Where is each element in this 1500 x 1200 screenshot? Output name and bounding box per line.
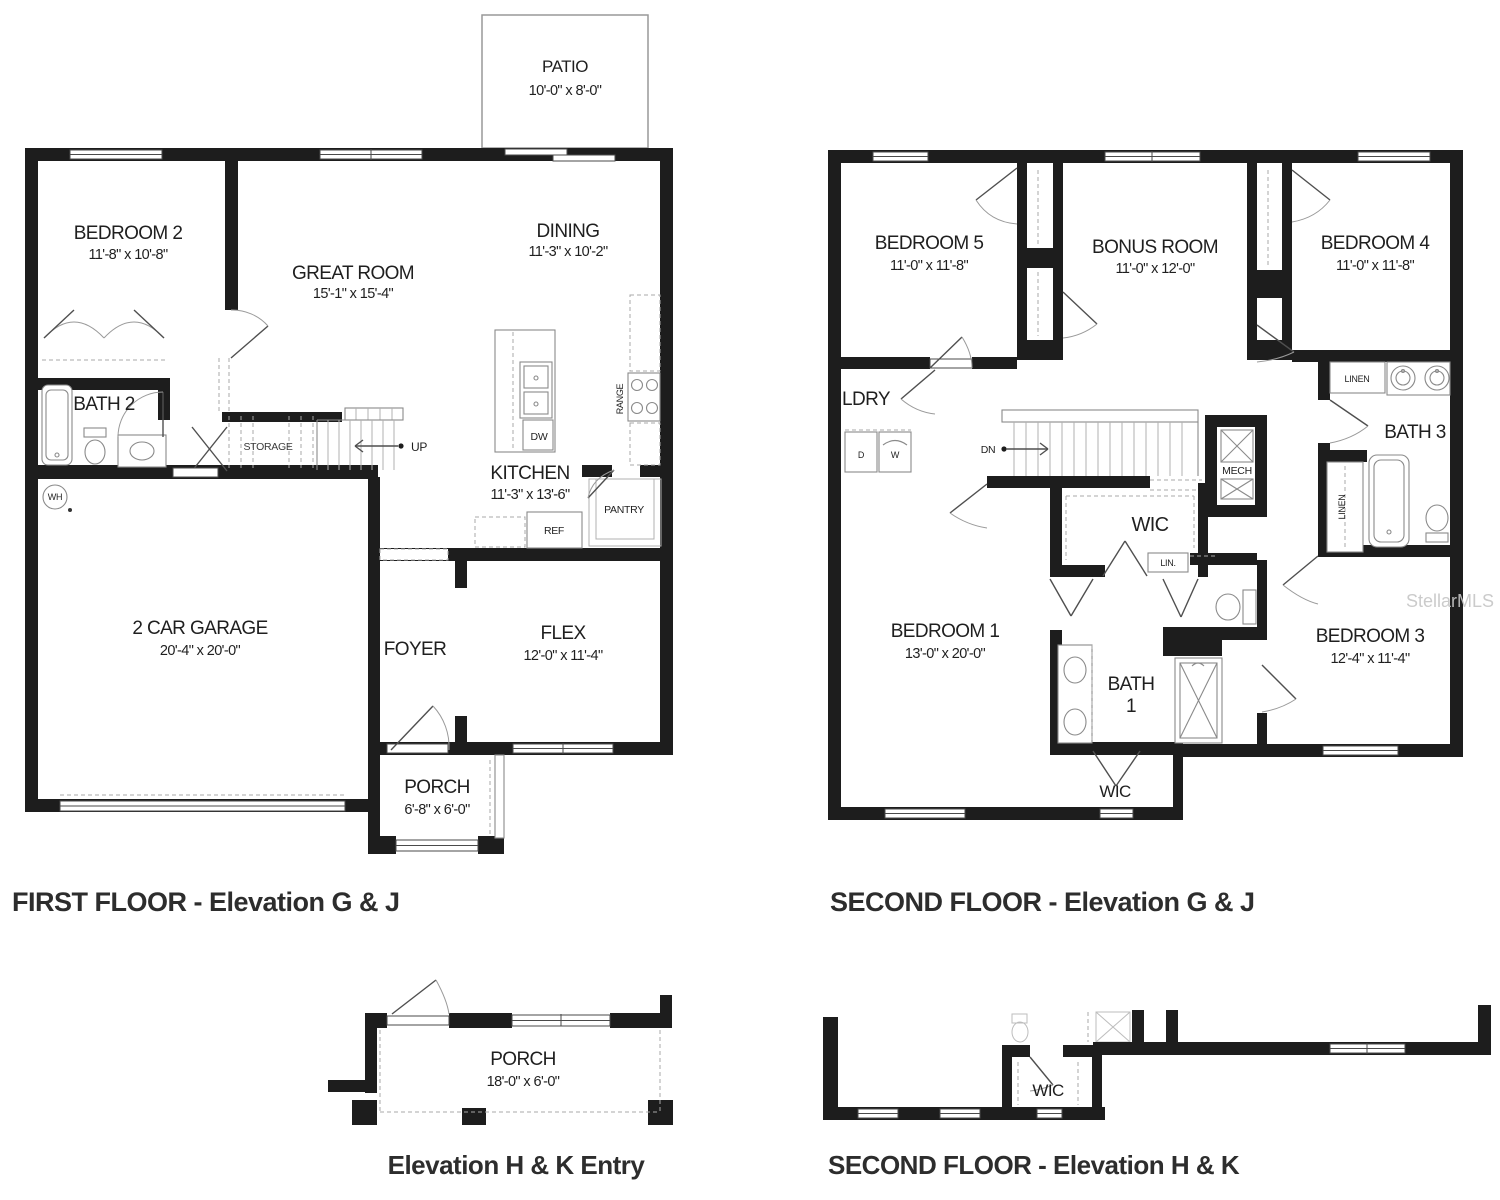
bath1-label-line1: BATH	[1108, 674, 1155, 695]
stellar-mls-watermark: StellarMLS	[1406, 591, 1494, 611]
patio-label: PATIO	[542, 57, 588, 76]
wic-hk-label: WIC	[1032, 1081, 1064, 1100]
bedroom2-dims: 11'-8" x 10'-8"	[88, 247, 168, 263]
dining-label: DINING	[537, 221, 600, 242]
bedroom4-label: BEDROOM 4	[1321, 233, 1431, 254]
floor-plan-sheet: PATIO 10'-0" x 8'-0"	[0, 0, 1500, 1200]
bedroom2-label: BEDROOM 2	[74, 223, 183, 244]
laundry-fixtures: D W	[845, 430, 911, 472]
lin-label: LIN.	[1160, 558, 1175, 568]
entry-porch-dims: 18'-0" x 6'-0"	[487, 1074, 560, 1090]
wic-label: WIC	[1131, 514, 1168, 536]
wh-label: WH	[48, 492, 62, 502]
porch-dims: 6'-8" x 6'-0"	[404, 802, 470, 818]
kitchen-dims: 11'-3" x 13'-6"	[490, 487, 570, 503]
kitchen-fixtures: DW RANGE REF PANTRY	[475, 295, 661, 548]
second-floor-title: SECOND FLOOR - Elevation G & J	[830, 887, 1255, 917]
dn-label: DN	[981, 444, 996, 456]
entry-elevation-plan: PORCH 18'-0" x 6'-0" Elevation H & K Ent…	[328, 980, 673, 1180]
up-label: UP	[411, 440, 427, 454]
ref-label: REF	[544, 525, 564, 537]
dw-label: DW	[531, 431, 548, 443]
ghost-fixtures	[1012, 1012, 1130, 1042]
dryer-label: D	[858, 450, 865, 460]
second-floor-plan: D W DN MECH	[828, 150, 1463, 917]
bedroom5-label: BEDROOM 5	[875, 233, 984, 254]
second-floor-hk-title: SECOND FLOOR - Elevation H & K	[828, 1150, 1240, 1180]
mech-label: MECH	[1222, 465, 1252, 477]
water-heater: WH	[43, 485, 72, 512]
foyer-label: FOYER	[384, 639, 446, 660]
great-room-dims: 15'-1" x 15'-4"	[313, 286, 394, 302]
ldry-label: LDRY	[842, 389, 891, 410]
bedroom3-dims: 12'-4" x 11'-4"	[1330, 651, 1410, 667]
linen-label: LINEN	[1344, 374, 1369, 384]
bedroom2-door	[231, 310, 268, 358]
bedroom5-dims: 11'-0" x 11'-8"	[890, 258, 968, 274]
front-door	[387, 706, 449, 753]
bath1-fixtures	[1058, 590, 1256, 743]
storage-label: STORAGE	[243, 441, 292, 453]
second-floor-hk-plan: WIC SECOND FLOOR - Elevation H & K	[823, 1005, 1491, 1180]
garage-dims: 20'-4" x 20'-0"	[160, 643, 241, 659]
bedroom3-label: BEDROOM 3	[1316, 626, 1425, 647]
bedroom1-dims: 13'-0" x 20'-0"	[905, 646, 986, 662]
entry-porch-label: PORCH	[490, 1049, 556, 1070]
stairs-down: DN	[981, 410, 1198, 476]
patio-dims: 10'-0" x 8'-0"	[529, 83, 602, 99]
entry-elevation-title: Elevation H & K Entry	[388, 1150, 646, 1180]
bath3-label: BATH 3	[1384, 422, 1446, 443]
bedroom2-closet	[40, 310, 168, 378]
range-label: RANGE	[615, 383, 625, 414]
first-floor-title: FIRST FLOOR - Elevation G & J	[12, 887, 400, 917]
linen2-label: LINEN	[1337, 494, 1347, 519]
porch-first-floor: PORCH 6'-8" x 6'-0"	[368, 755, 504, 854]
bath2-label: BATH 2	[73, 394, 135, 415]
bath1-label-line2: 1	[1126, 696, 1136, 717]
bonus-label: BONUS ROOM	[1092, 237, 1218, 258]
mech-closet: MECH	[1205, 415, 1267, 517]
bonus-dims: 11'-0" x 12'-0"	[1115, 261, 1195, 277]
garage-label: 2 CAR GARAGE	[132, 618, 267, 639]
washer-label: W	[891, 450, 900, 460]
floor-plan-canvas: PATIO 10'-0" x 8'-0"	[0, 0, 1500, 1200]
pantry-label: PANTRY	[604, 504, 644, 516]
dining-dims: 11'-3" x 10'-2"	[528, 244, 608, 260]
flex-dims: 12'-0" x 11'-4"	[523, 648, 603, 664]
first-floor-plan: PATIO 10'-0" x 8'-0"	[12, 15, 673, 917]
bedroom1-label: BEDROOM 1	[891, 621, 1000, 642]
flex-label: FLEX	[540, 623, 586, 644]
great-room-label: GREAT ROOM	[292, 263, 414, 284]
patio: PATIO 10'-0" x 8'-0"	[482, 15, 648, 148]
porch-label: PORCH	[404, 777, 470, 798]
kitchen-label: KITCHEN	[490, 463, 569, 484]
bedroom4-dims: 11'-0" x 11'-8"	[1336, 258, 1414, 274]
wic2-label: WIC	[1099, 782, 1131, 801]
